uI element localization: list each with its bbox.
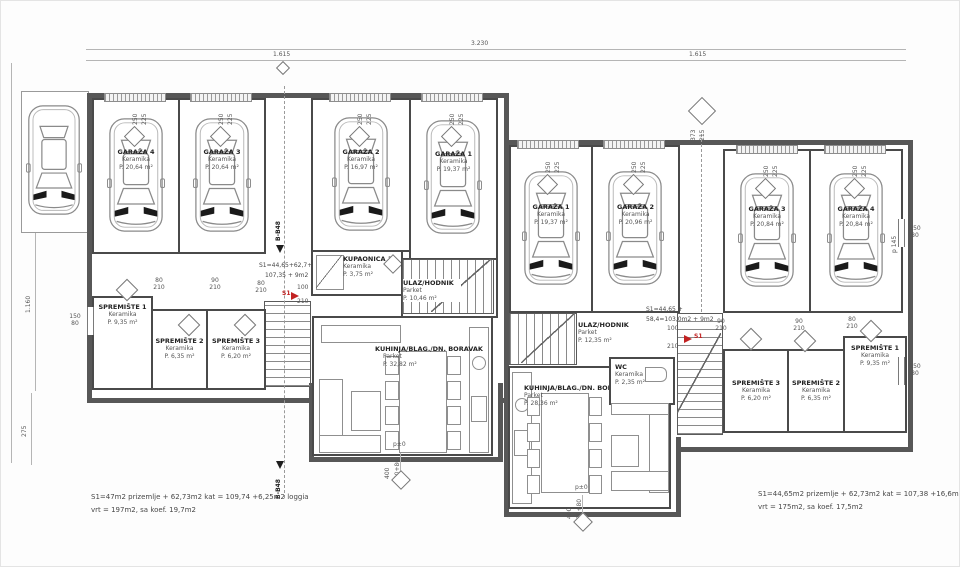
room-label: SPREMIŠTE 1 Keramika P. 9,35 m²: [94, 303, 151, 326]
chair: [589, 449, 602, 468]
staircase-cut-line: [521, 313, 575, 363]
sofa-horizontal: [611, 471, 669, 491]
dim-275-label: 275: [21, 426, 28, 437]
sofa-horizontal: [319, 435, 381, 453]
area-note-left-2: 107,35 + 9m2: [265, 272, 308, 279]
dim-373: 373: [690, 130, 697, 141]
coffee-table: [351, 391, 381, 431]
room-storage-right-2: SPREMIŠTE 2 Keramika P. 6,35 m²: [787, 349, 845, 433]
dining-table: [399, 351, 447, 453]
garage-door-right-1: [517, 140, 579, 149]
dim-total-label: 3.230: [471, 40, 488, 47]
window-left-wall: [87, 307, 94, 335]
unit-arrow-left: [291, 292, 299, 300]
chair: [589, 475, 602, 494]
chair: [447, 431, 461, 450]
counter-under-wc: [611, 403, 669, 415]
chair: [589, 423, 602, 442]
garage-door-dim: 225: [640, 162, 647, 173]
window-dim-right-upper: 15080: [907, 225, 923, 239]
chair: [385, 406, 399, 425]
dim-line-far-left: [11, 63, 12, 463]
garage-door-left-2: [329, 93, 391, 102]
floor-plan-canvas: 3.230 1.615 1.615 1.160 275 p 140 GARAŽA…: [0, 0, 960, 567]
garage-door-dim: 250: [631, 162, 638, 173]
garage-door-left-3: [190, 93, 252, 102]
dim-line-275: [31, 393, 32, 465]
summary-right-line1: S1=44,65m2 prizemlje + 62,73m2 kat = 107…: [758, 490, 960, 498]
level-diamond-top-right: [688, 97, 716, 125]
garage-door-dim: 225: [772, 166, 779, 177]
area-note-left-1: S1=44,65+62,7+: [259, 262, 312, 269]
dining-table: [541, 393, 589, 493]
area-note-right-2: 58,4=103,0m2 + 9m2: [646, 316, 714, 323]
level-dim-400: 400: [384, 468, 391, 479]
dim-line-total: [86, 49, 906, 50]
door-dim-80-210: 80210: [253, 280, 269, 294]
section-arrow-bottom: [276, 461, 284, 469]
dim-line-half-left: [86, 60, 499, 61]
garage-door-dim: 225: [366, 114, 373, 125]
room-label: SPREMIŠTE 3 Keramika P. 6,20 m²: [208, 337, 264, 360]
garage-door-dim: 225: [458, 114, 465, 125]
garage-door-dim: 250: [449, 114, 456, 125]
kitchen-counter-top: [321, 325, 401, 343]
door-dim-80-210: 80210: [844, 316, 860, 330]
garage-door-dim: 225: [227, 114, 234, 125]
garage-door-right-2: [603, 140, 665, 149]
garage-door-dim: 225: [861, 166, 868, 177]
garage-door-dim: 225: [141, 114, 148, 125]
summary-left-line2: vrt = 197m2, sa koef. 19,7m2: [91, 506, 196, 514]
entry-dim-100: 100: [667, 325, 678, 332]
summary-right-line2: vrt = 175m2, sa koef. 17,5m2: [758, 503, 863, 511]
level-label-right: p±0: [575, 484, 588, 491]
garage-door-left-1: [421, 93, 483, 102]
room-storage-left-1: SPREMIŠTE 1 Keramika P. 9,35 m²: [92, 296, 153, 390]
chair: [385, 381, 399, 400]
toilet: [645, 367, 667, 382]
level-dim-400: 400: [566, 508, 573, 519]
dim-215: 215: [699, 130, 706, 141]
door-dim-90-210: 90210: [713, 318, 729, 332]
chair: [385, 356, 399, 375]
summary-left-line1: S1=47m2 prizemlje + 62,73m2 kat = 109,74…: [91, 493, 309, 501]
window-dim-right-lower: 15080: [907, 363, 923, 377]
window-right-wall-upper: [898, 219, 905, 247]
room-label: SPREMIŠTE 2 Keramika P. 6,35 m²: [789, 379, 843, 402]
dim-1160-label: 1.160: [25, 296, 32, 313]
kitchen-counter-right: [469, 327, 489, 453]
chair: [447, 406, 461, 425]
entry-dim-210: 210: [667, 343, 678, 350]
dim-line-1160: [35, 233, 36, 391]
car-outside: [26, 97, 82, 223]
chair: [527, 449, 540, 468]
chair: [447, 381, 461, 400]
dim-node-diamond: [276, 61, 290, 75]
garage-door-dim: 225: [554, 162, 561, 173]
room-label: WC Keramika P. 2,35 m²: [615, 363, 649, 386]
room-storage-right-3: SPREMIŠTE 3 Keramika P. 6,20 m²: [723, 349, 789, 433]
garage-door-dim: 250: [852, 166, 859, 177]
level-label-left: p±0: [393, 441, 406, 448]
unit-arrow-right: [684, 335, 692, 343]
chair: [447, 356, 461, 375]
garage-door-dim: 250: [545, 162, 552, 173]
garage-door-dim: 250: [357, 114, 364, 125]
window-right-wall-lower: [898, 357, 905, 385]
room-label: SPREMIŠTE 2 Keramika P. 6,35 m²: [153, 337, 206, 360]
unit-marker-right: S1: [694, 333, 703, 340]
room-label: SPREMIŠTE 1 Keramika P. 9,35 m²: [845, 344, 905, 367]
section-arrow-top: [276, 245, 284, 253]
room-wc-right: WC Keramika P. 2,35 m²: [609, 357, 675, 405]
dim-half-right-label: 1.615: [689, 51, 706, 58]
door-dim-90-210: 90210: [791, 318, 807, 332]
room-living-left: KUHINJA/BLAG./DN. BORAVAK Parket P. 32,8…: [312, 316, 493, 456]
garage-door-dim: 250: [132, 114, 139, 125]
area-note-right-1: S1=44,65 +: [646, 306, 683, 313]
kitchen-stove: [471, 396, 487, 422]
unit-marker-left: S1: [282, 290, 291, 297]
staircase-left-corridor: [264, 301, 311, 387]
garage-door-right-4: [824, 145, 886, 154]
garage-door-dim: 250: [218, 114, 225, 125]
garage-door-dim: 250: [763, 166, 770, 177]
dim-half-left-label: 1.615: [273, 51, 290, 58]
chair: [527, 397, 540, 416]
chair: [527, 423, 540, 442]
garage-door-right-3: [736, 145, 798, 154]
shower-diagonal: [316, 255, 342, 288]
section-label-top: B-B48: [275, 221, 282, 241]
chair: [527, 475, 540, 494]
room-label: SPREMIŠTE 3 Keramika P. 6,20 m²: [725, 379, 787, 402]
dim-line-half-right: [499, 60, 906, 61]
room-storage-left-2: SPREMIŠTE 2 Keramika P. 6,35 m²: [151, 309, 208, 390]
door-dim-90-210: 90210: [207, 277, 223, 291]
staircase-cut-line: [431, 259, 491, 312]
entry-dim-100: 100: [297, 284, 308, 291]
kitchen-sink: [472, 356, 486, 370]
parapet-right-label: p 145: [891, 236, 898, 253]
coffee-table: [611, 435, 639, 467]
door-dim-80-210: 80210: [151, 277, 167, 291]
staircase-cut-line: [677, 333, 721, 413]
window-dim-left: 15080: [67, 313, 83, 327]
chair: [589, 397, 602, 416]
garage-door-left-4: [104, 93, 166, 102]
corridor-axis-line: [701, 134, 702, 312]
